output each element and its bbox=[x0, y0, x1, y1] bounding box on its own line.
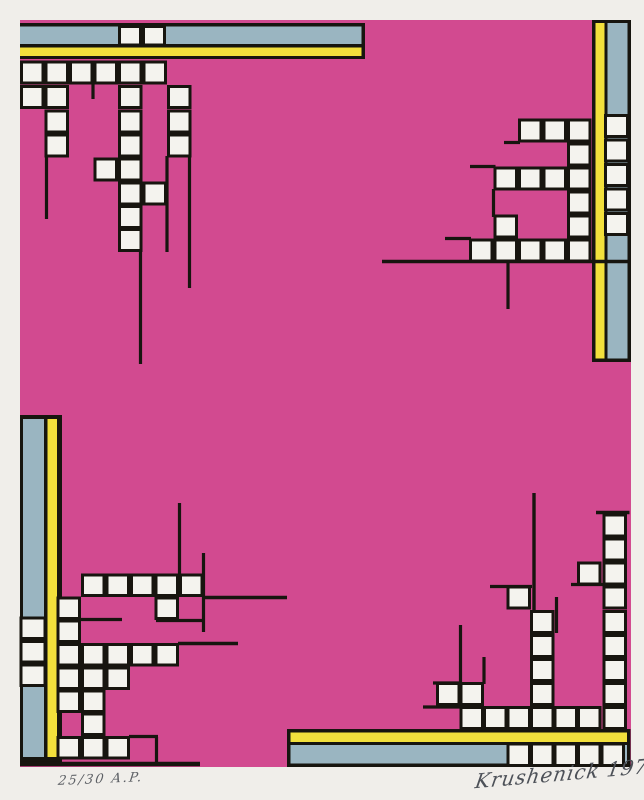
right-bar-tile bbox=[606, 214, 628, 235]
bottom-left-tile bbox=[156, 575, 178, 596]
top-bar-blue-stripe bbox=[20, 27, 362, 45]
top-right-tile bbox=[569, 192, 591, 213]
top-right-tile bbox=[569, 120, 591, 141]
top-bar-yellow-stripe bbox=[20, 48, 362, 57]
top-left-tile bbox=[95, 62, 117, 83]
bottom-left-tile bbox=[83, 668, 105, 689]
right-bar-tile bbox=[606, 189, 628, 210]
bottom-right-tile bbox=[532, 636, 554, 657]
top-left-tile bbox=[46, 62, 68, 83]
bottom-right-tile bbox=[579, 708, 601, 729]
top-left-tile bbox=[46, 111, 68, 132]
top-left-tile bbox=[144, 62, 166, 83]
artwork-print bbox=[0, 0, 644, 800]
top-right-tile bbox=[544, 168, 566, 189]
bottom-right-tile bbox=[579, 563, 601, 584]
top-left-tile bbox=[46, 87, 68, 108]
bottom-right-tile bbox=[532, 684, 554, 705]
bottom-left-tile bbox=[107, 575, 129, 596]
bottom-right-tile bbox=[555, 708, 577, 729]
left-bar-tile bbox=[21, 642, 45, 663]
top-left-tile bbox=[169, 87, 191, 108]
top-left-tile bbox=[169, 111, 191, 132]
bottom-left-tile bbox=[181, 575, 203, 596]
top-left-tile bbox=[169, 135, 191, 156]
bottom-left-tile bbox=[83, 738, 105, 759]
top-right-tile bbox=[544, 240, 566, 261]
bottom-right-tile bbox=[461, 708, 483, 729]
bottom-right-tile bbox=[604, 708, 626, 729]
top-left-tile bbox=[120, 62, 142, 83]
bottom-bar-tile bbox=[532, 744, 554, 766]
bottom-left-tile bbox=[107, 645, 129, 666]
bottom-left-tile bbox=[58, 738, 80, 759]
bottom-right-tile bbox=[604, 684, 626, 705]
top-left-tile bbox=[120, 87, 142, 108]
bottom-left-tile bbox=[58, 621, 80, 642]
bottom-right-tile bbox=[508, 587, 530, 608]
top-left-tile bbox=[120, 207, 142, 228]
bottom-bar-tile bbox=[579, 744, 601, 766]
bottom-left-tile bbox=[83, 691, 105, 712]
bottom-right-tile bbox=[604, 636, 626, 657]
top-right-tile bbox=[495, 168, 517, 189]
right-bar-yellow-stripe bbox=[596, 23, 605, 359]
top-right-tile bbox=[520, 168, 542, 189]
bottom-right-tile bbox=[532, 708, 554, 729]
top-left-tile bbox=[120, 111, 142, 132]
top-right-tile bbox=[520, 120, 542, 141]
bottom-left-tile bbox=[83, 714, 105, 735]
top-left-tile bbox=[22, 87, 44, 108]
bottom-left-tile bbox=[58, 645, 80, 666]
bottom-left-tile bbox=[58, 598, 80, 619]
top-right-tile bbox=[569, 240, 591, 261]
bottom-bar-yellow-stripe bbox=[291, 733, 628, 743]
bottom-left-tile bbox=[107, 738, 129, 759]
top-left-tile bbox=[144, 183, 166, 204]
right-bar-tile bbox=[606, 116, 628, 137]
left-bar-yellow-stripe bbox=[48, 419, 58, 757]
top-left-tile bbox=[120, 159, 142, 180]
top-right-tile bbox=[569, 168, 591, 189]
bottom-bar-tile bbox=[555, 744, 577, 766]
top-right-tile bbox=[495, 216, 517, 237]
bottom-right-tile bbox=[508, 708, 530, 729]
top-left-tile bbox=[46, 135, 68, 156]
left-bar-blue-stripe bbox=[23, 419, 44, 757]
bottom-left-tile bbox=[156, 598, 178, 619]
top-right-tile bbox=[569, 144, 591, 165]
left-bar-tile bbox=[21, 665, 45, 686]
top-right-tile bbox=[471, 240, 493, 261]
top-right-tile bbox=[569, 216, 591, 237]
right-bar-tile bbox=[606, 165, 628, 186]
left-bar-tile bbox=[21, 618, 45, 639]
top-right-tile bbox=[495, 240, 517, 261]
bottom-left-tile bbox=[107, 668, 129, 689]
bottom-right-tile bbox=[604, 587, 626, 608]
bottom-right-tile bbox=[461, 684, 483, 705]
bottom-left-tile bbox=[132, 575, 154, 596]
bottom-right-tile bbox=[604, 539, 626, 560]
bottom-bar-tile bbox=[602, 744, 624, 766]
bottom-left-tile bbox=[58, 668, 80, 689]
bottom-right-tile bbox=[485, 708, 507, 729]
bottom-right-tile bbox=[438, 684, 460, 705]
top-right-tile bbox=[544, 120, 566, 141]
bottom-right-tile bbox=[604, 515, 626, 536]
top-left-tile bbox=[120, 230, 142, 251]
photo-of-print: 25/30 A.P. Krushenick 1978 bbox=[0, 0, 644, 800]
top-left-tile bbox=[120, 135, 142, 156]
bottom-right-tile bbox=[604, 563, 626, 584]
bottom-left-tile bbox=[83, 575, 105, 596]
bottom-left-tile bbox=[83, 645, 105, 666]
bottom-left-tile bbox=[132, 645, 154, 666]
bottom-right-tile bbox=[532, 612, 554, 633]
bottom-right-tile bbox=[604, 660, 626, 681]
top-bar-tile bbox=[144, 27, 165, 46]
top-left-tile bbox=[120, 183, 142, 204]
bottom-right-tile bbox=[532, 660, 554, 681]
top-left-tile bbox=[95, 159, 117, 180]
top-left-tile bbox=[22, 62, 44, 83]
bottom-left-tile bbox=[58, 691, 80, 712]
top-right-tile bbox=[520, 240, 542, 261]
bottom-bar-tile bbox=[508, 744, 530, 766]
top-left-tile bbox=[71, 62, 93, 83]
top-bar-tile bbox=[120, 27, 141, 46]
bottom-right-tile bbox=[604, 612, 626, 633]
bottom-left-tile bbox=[156, 645, 178, 666]
right-bar-tile bbox=[606, 140, 628, 161]
